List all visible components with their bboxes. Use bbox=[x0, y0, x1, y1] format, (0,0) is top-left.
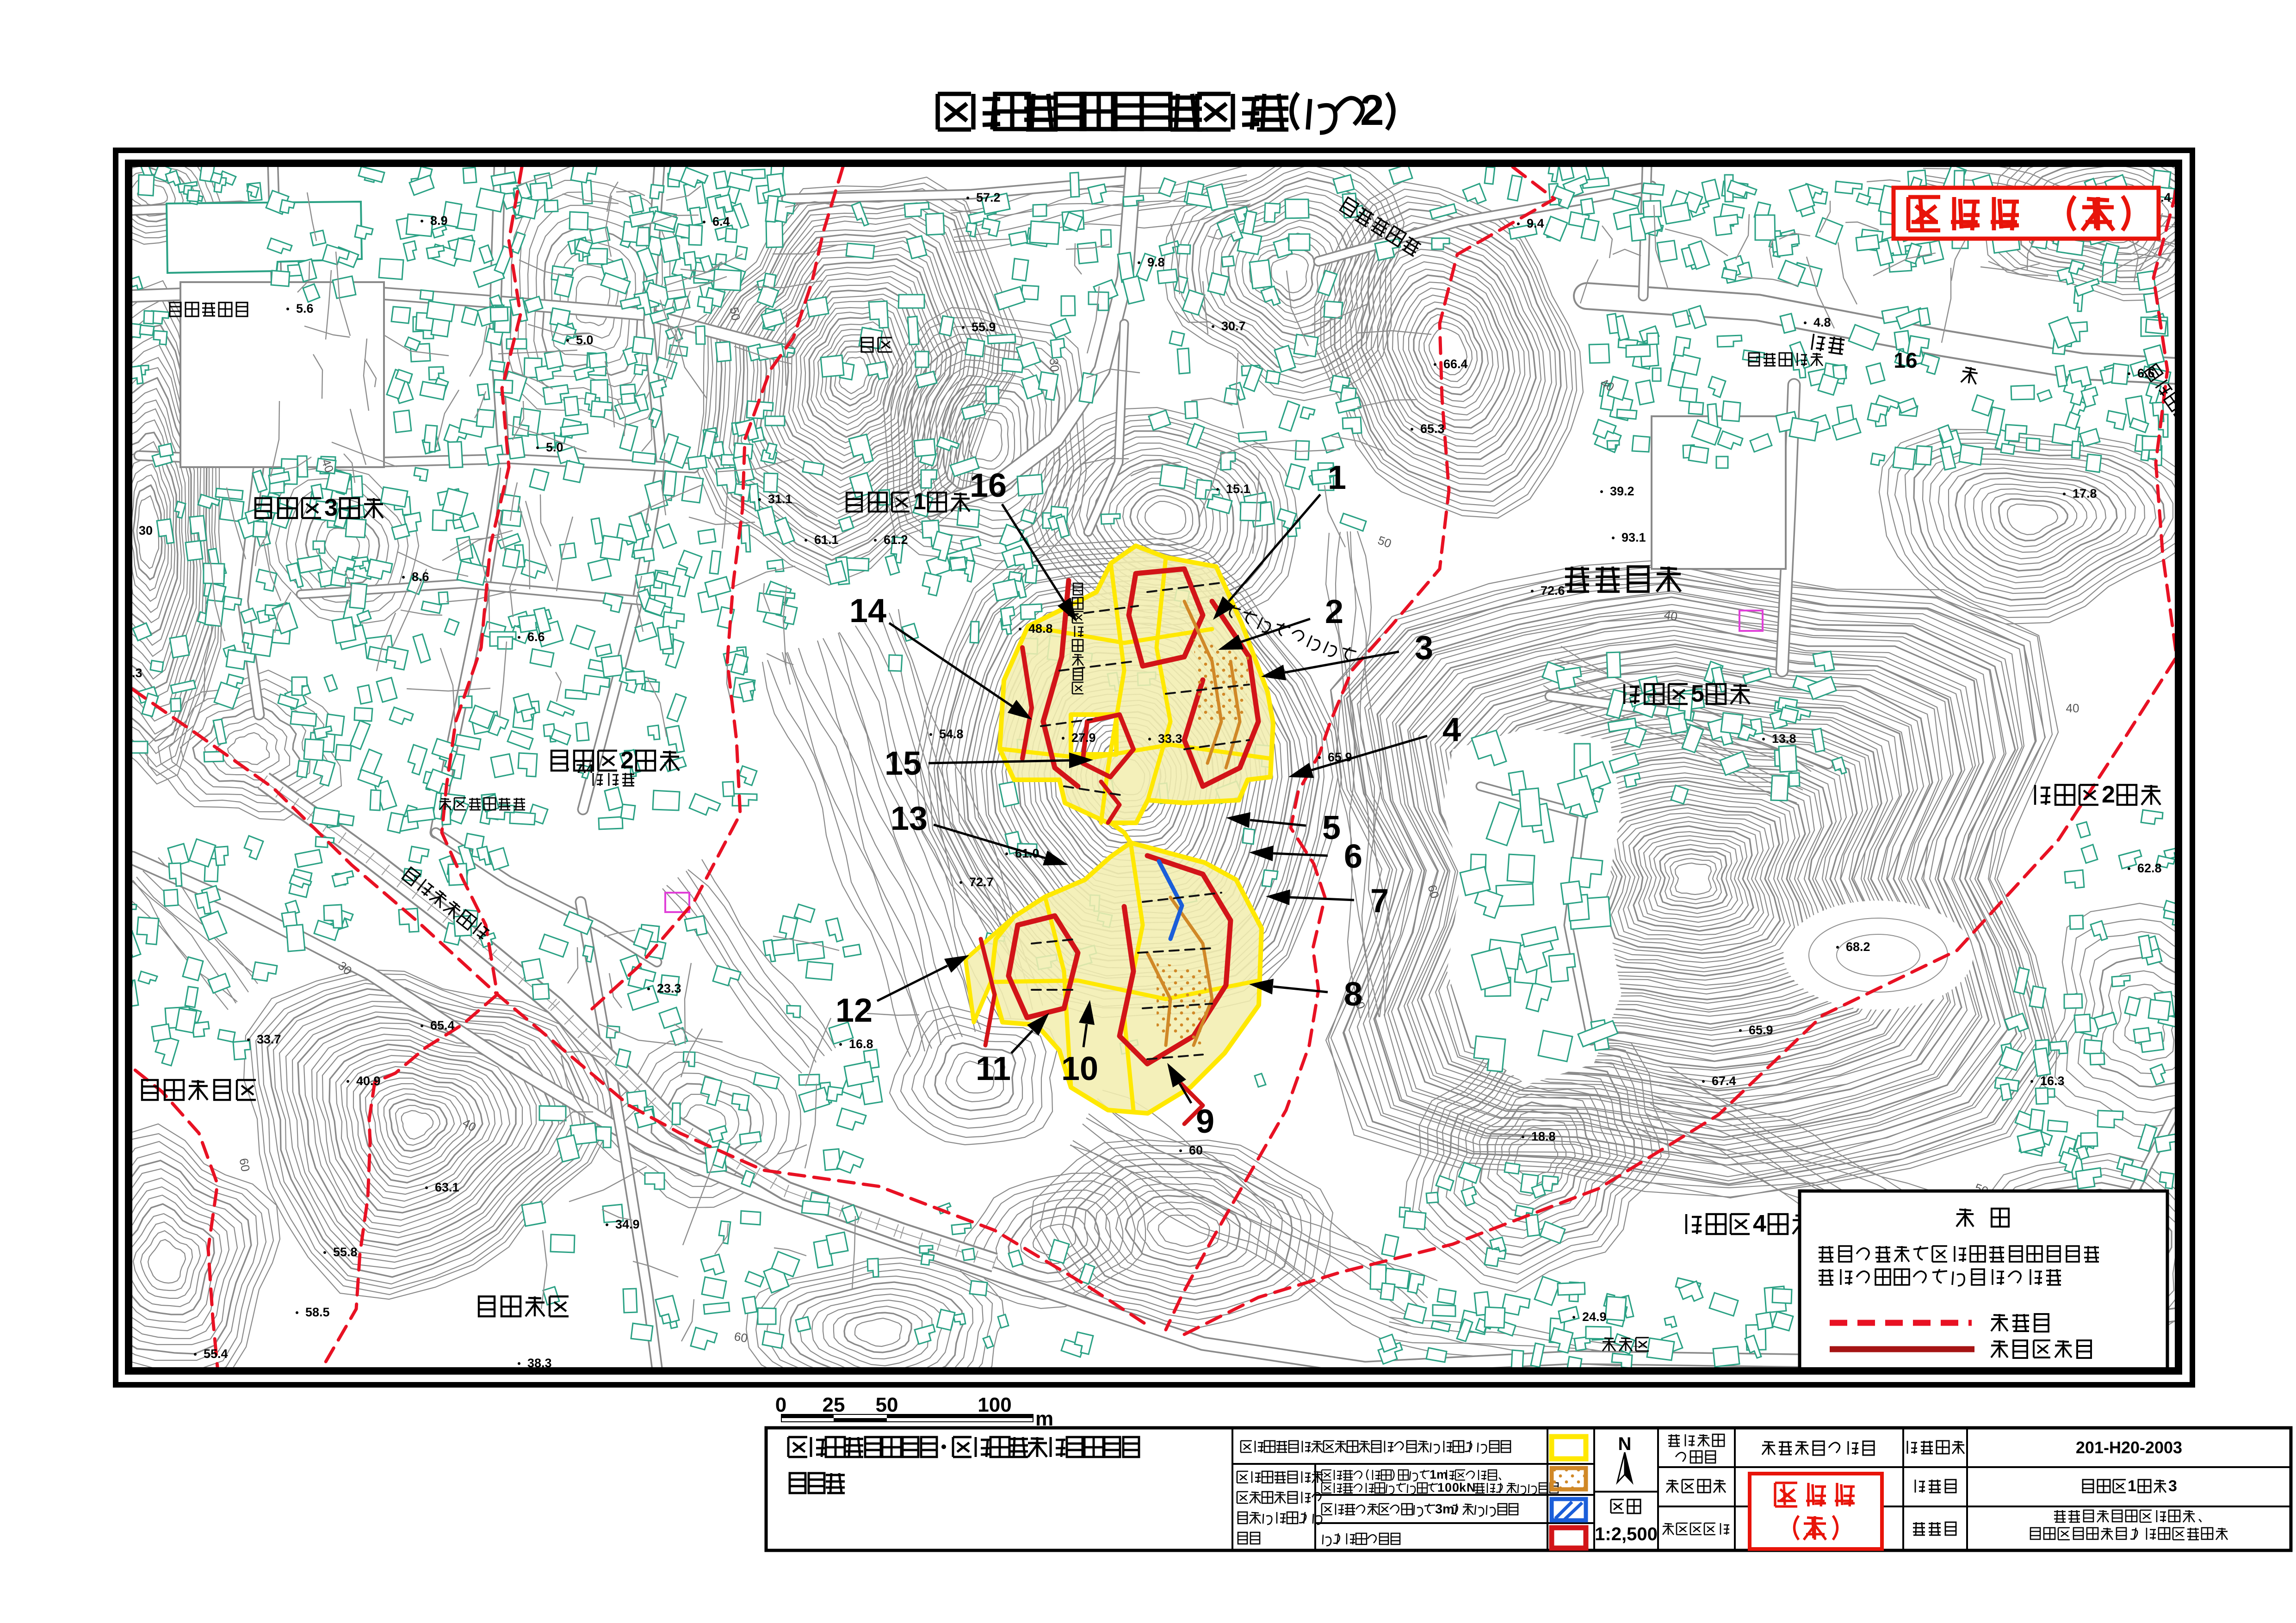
svg-text:9.4: 9.4 bbox=[1527, 216, 1544, 230]
svg-text:18.8: 18.8 bbox=[1531, 1129, 1556, 1143]
svg-text:4: 4 bbox=[1753, 1210, 1766, 1237]
svg-text:61.1: 61.1 bbox=[814, 533, 839, 547]
svg-text:N: N bbox=[1467, 1481, 1476, 1494]
svg-text:25: 25 bbox=[823, 1394, 845, 1416]
svg-text:65.4: 65.4 bbox=[430, 1018, 455, 1032]
svg-text:15: 15 bbox=[885, 745, 922, 782]
svg-text:16: 16 bbox=[1894, 348, 1917, 372]
svg-text:1: 1 bbox=[2128, 1477, 2136, 1495]
svg-text:0: 0 bbox=[1445, 1481, 1452, 1494]
svg-text:2: 2 bbox=[1360, 86, 1384, 134]
svg-text:15.1: 15.1 bbox=[1226, 482, 1250, 496]
svg-text:5.6: 5.6 bbox=[296, 302, 314, 315]
svg-text:7: 7 bbox=[1370, 882, 1389, 919]
svg-text:55.9: 55.9 bbox=[972, 320, 996, 334]
svg-text:40: 40 bbox=[1663, 608, 1679, 624]
svg-text:11: 11 bbox=[976, 1050, 1011, 1087]
svg-text:3: 3 bbox=[1435, 1502, 1442, 1517]
svg-text:0: 0 bbox=[1452, 1481, 1459, 1494]
svg-text:6.6: 6.6 bbox=[2137, 366, 2155, 380]
svg-text:61.2: 61.2 bbox=[884, 533, 908, 547]
svg-text:24.9: 24.9 bbox=[1582, 1310, 1607, 1324]
svg-text:57.2: 57.2 bbox=[976, 191, 1001, 204]
svg-text:3: 3 bbox=[324, 494, 338, 521]
svg-text:5: 5 bbox=[1322, 809, 1341, 846]
svg-text:1: 1 bbox=[1328, 459, 1346, 496]
svg-text:93.1: 93.1 bbox=[1621, 531, 1646, 544]
svg-text:m: m bbox=[1436, 1468, 1448, 1481]
svg-text:2: 2 bbox=[620, 747, 634, 774]
svg-text:33.3: 33.3 bbox=[1158, 732, 1182, 746]
svg-text:65.9: 65.9 bbox=[1749, 1023, 1773, 1037]
svg-text:30.7: 30.7 bbox=[1221, 319, 1246, 333]
svg-text:16.8: 16.8 bbox=[849, 1037, 873, 1051]
svg-text:1:2,500: 1:2,500 bbox=[1595, 1524, 1658, 1544]
svg-text:34.9: 34.9 bbox=[615, 1217, 640, 1231]
svg-text:66.4: 66.4 bbox=[1443, 357, 1468, 371]
svg-text:8.9: 8.9 bbox=[430, 214, 448, 228]
svg-text:58.5: 58.5 bbox=[305, 1305, 330, 1319]
svg-text:68.2: 68.2 bbox=[1846, 940, 1870, 954]
svg-text:16.3: 16.3 bbox=[2040, 1074, 2065, 1088]
svg-text:55.4: 55.4 bbox=[204, 1347, 228, 1361]
svg-text:31.1: 31.1 bbox=[768, 492, 792, 506]
svg-text:17.8: 17.8 bbox=[2073, 487, 2097, 500]
svg-text:50: 50 bbox=[727, 306, 743, 322]
svg-text:8.6: 8.6 bbox=[412, 570, 429, 584]
svg-text:2: 2 bbox=[1325, 593, 1343, 630]
svg-text:k: k bbox=[1459, 1481, 1467, 1494]
svg-text:1: 1 bbox=[913, 488, 926, 514]
svg-text:30: 30 bbox=[1047, 358, 1062, 372]
svg-text:2: 2 bbox=[2102, 781, 2115, 808]
svg-text:13.8: 13.8 bbox=[1772, 732, 1796, 746]
svg-text:4: 4 bbox=[1442, 711, 1461, 748]
svg-text:6: 6 bbox=[1344, 838, 1362, 875]
svg-text:9.8: 9.8 bbox=[1147, 255, 1165, 269]
svg-text:60: 60 bbox=[237, 1157, 253, 1173]
svg-text:27.9: 27.9 bbox=[1071, 731, 1096, 745]
svg-text:0: 0 bbox=[775, 1394, 786, 1416]
svg-text:5: 5 bbox=[1691, 680, 1704, 707]
svg-text:1: 1 bbox=[1430, 1468, 1436, 1481]
svg-text:30: 30 bbox=[139, 524, 153, 537]
svg-text:7.4: 7.4 bbox=[576, 762, 594, 776]
svg-text:50: 50 bbox=[876, 1394, 898, 1416]
svg-text:60: 60 bbox=[1189, 1143, 1203, 1157]
svg-text:67.4: 67.4 bbox=[1712, 1074, 1736, 1088]
svg-text:63.1: 63.1 bbox=[435, 1180, 459, 1194]
svg-text:5.0: 5.0 bbox=[546, 440, 563, 454]
svg-text:33.7: 33.7 bbox=[257, 1032, 281, 1046]
svg-text:3: 3 bbox=[2168, 1477, 2177, 1495]
svg-text:4.8: 4.8 bbox=[1813, 315, 1831, 329]
svg-text:60: 60 bbox=[733, 1329, 749, 1345]
svg-text:10: 10 bbox=[1061, 1050, 1098, 1087]
svg-text:72.7: 72.7 bbox=[969, 875, 994, 889]
svg-text:8: 8 bbox=[1344, 976, 1362, 1013]
svg-text:40: 40 bbox=[2066, 701, 2079, 715]
svg-text:N: N bbox=[1618, 1434, 1632, 1454]
svg-text:16: 16 bbox=[970, 467, 1007, 504]
svg-text:6.6: 6.6 bbox=[527, 630, 545, 644]
svg-text:62.8: 62.8 bbox=[2137, 861, 2162, 875]
svg-text:55.8: 55.8 bbox=[333, 1245, 358, 1259]
svg-text:m: m bbox=[1442, 1502, 1454, 1517]
svg-text:3: 3 bbox=[1415, 629, 1433, 666]
svg-text:65.3: 65.3 bbox=[1420, 422, 1445, 436]
svg-text:39.2: 39.2 bbox=[1610, 484, 1634, 498]
svg-text:72.6: 72.6 bbox=[1541, 584, 1565, 598]
svg-text:1: 1 bbox=[1437, 1481, 1444, 1494]
svg-text:201-H20-2003: 201-H20-2003 bbox=[2076, 1438, 2182, 1457]
svg-text:6.4: 6.4 bbox=[712, 215, 730, 228]
svg-text:48.8: 48.8 bbox=[1028, 622, 1053, 636]
svg-text:23.3: 23.3 bbox=[657, 981, 681, 995]
svg-text:100: 100 bbox=[978, 1394, 1011, 1416]
svg-text:13: 13 bbox=[891, 800, 928, 837]
svg-text:40.9: 40.9 bbox=[356, 1074, 381, 1088]
svg-text:54.8: 54.8 bbox=[939, 727, 964, 741]
svg-text:5.0: 5.0 bbox=[576, 333, 594, 347]
svg-text:14: 14 bbox=[849, 592, 886, 629]
svg-text:12: 12 bbox=[835, 992, 873, 1029]
svg-text:9: 9 bbox=[1196, 1103, 1214, 1140]
